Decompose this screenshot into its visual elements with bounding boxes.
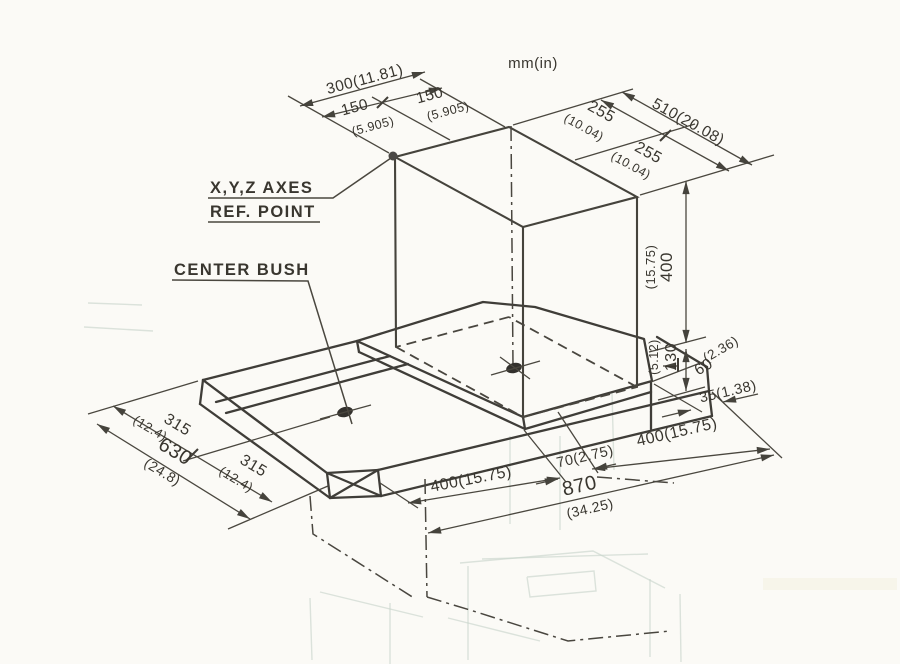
callout-center-bush: CENTER BUSH [174,261,310,279]
dim-top-width-right-mm: 150 [414,84,445,108]
dim-height-z-mm: 400 [657,252,676,282]
callout-axes-ref-line1: X,Y,Z AXES [210,179,313,197]
dim-front-left: 400(15.75) [429,463,513,495]
labels: mm(in) 300(11.81) 150 (5.905) 150 (5.905… [131,55,759,521]
dim-height-step-in: (2.36) [700,333,741,365]
dim-edge-offset: 35(1.38) [698,378,758,407]
dim-height-table-in: (5.12) [647,339,661,375]
dim-front-right: 400(15.75) [635,415,719,450]
technical-drawing-sheet: mm(in) 300(11.81) 150 (5.905) 150 (5.905… [0,0,900,664]
units-label: mm(in) [508,55,558,72]
dim-height-z-in: (15.75) [643,245,658,290]
dim-height-table-mm: 130 [663,343,680,371]
isometric-dimension-drawing: mm(in) 300(11.81) 150 (5.905) 150 (5.905… [0,0,900,664]
center-axis-line [511,126,513,366]
dimension-lines [97,72,774,533]
dim-top-width-total: 300(11.81) [325,61,406,98]
dim-top-width-left-mm: 150 [339,96,370,120]
dim-top-width-left-in: (5.905) [350,114,395,139]
callout-axes-ref-line2: REF. POINT [210,203,316,221]
